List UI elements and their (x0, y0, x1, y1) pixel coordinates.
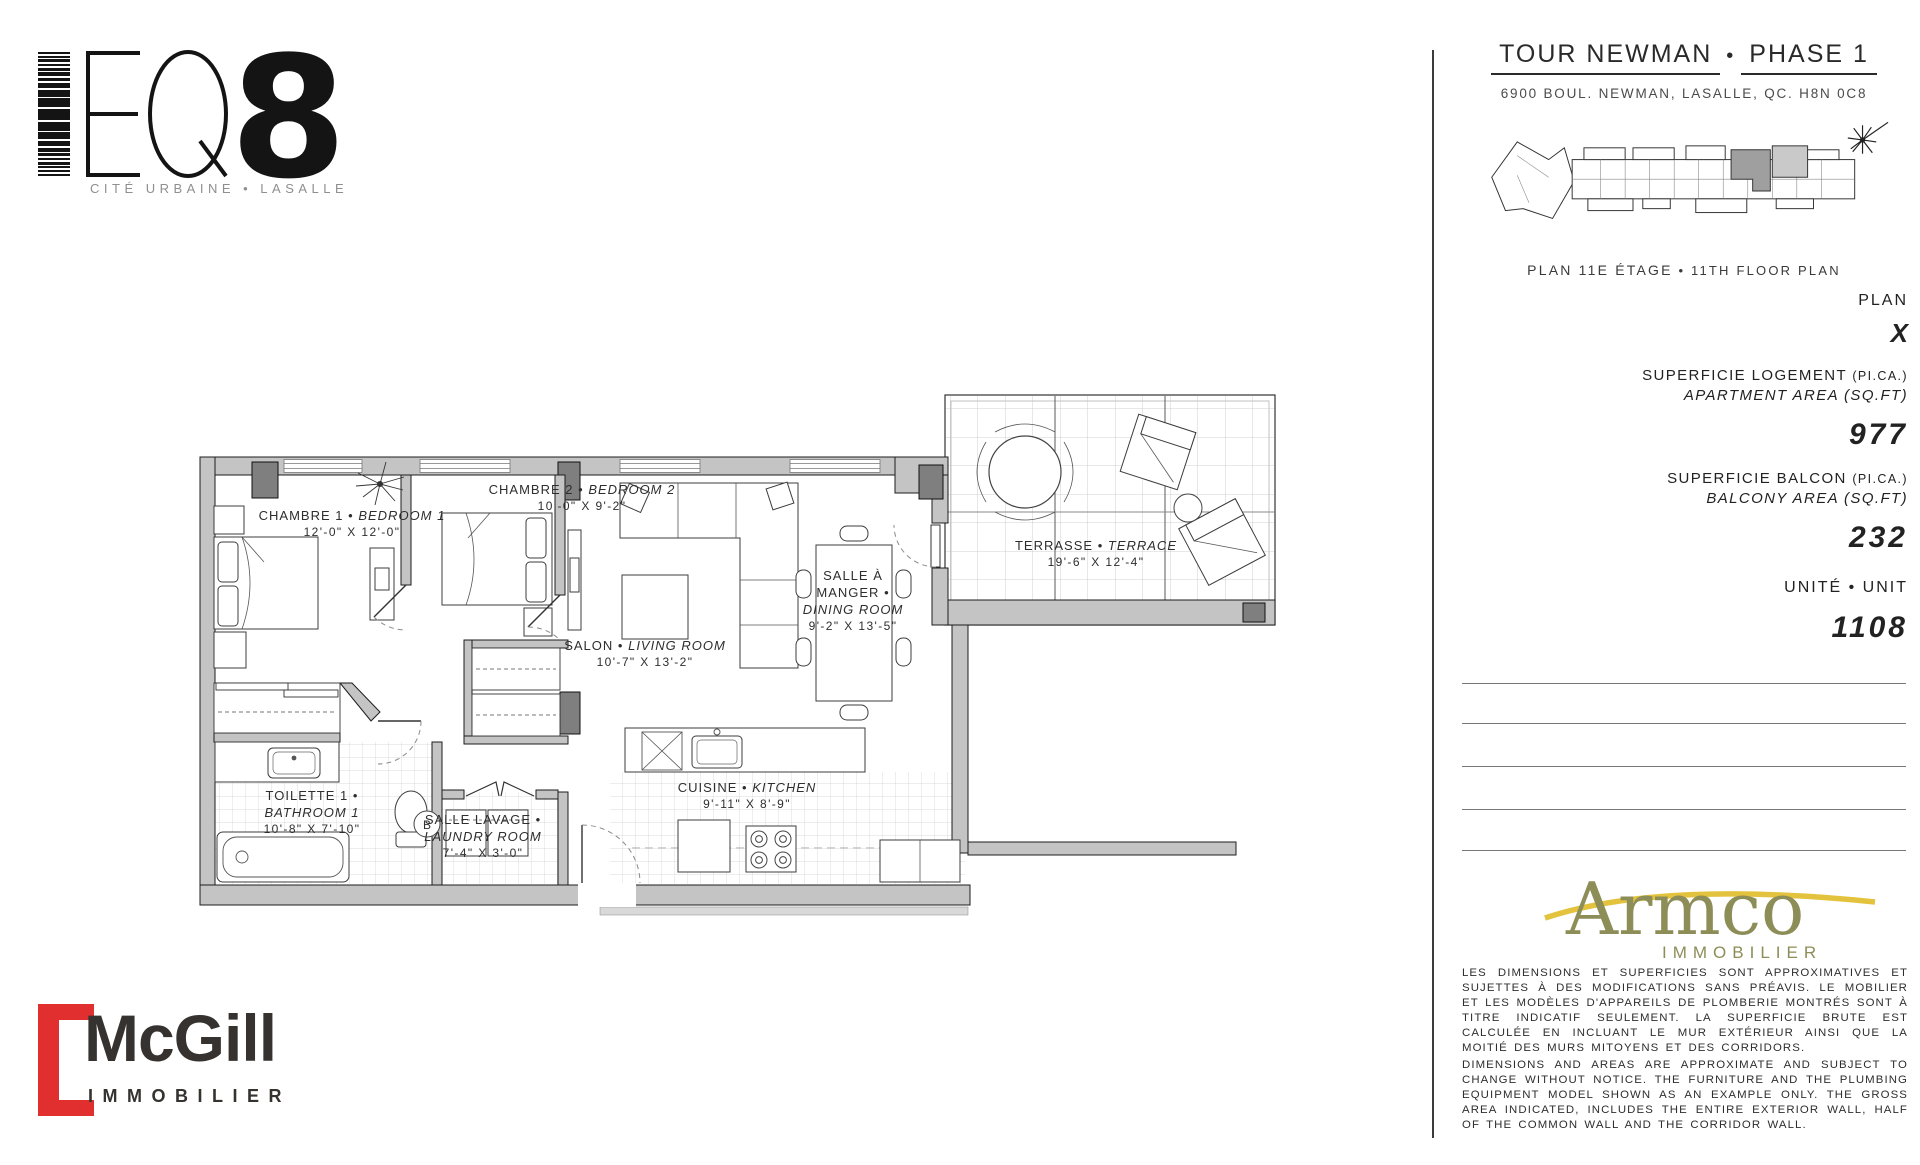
disclaimer-en: DIMENSIONS AND AREAS ARE APPROXIMATE AND… (1462, 1058, 1908, 1133)
project-title-en: PHASE 1 (1741, 40, 1877, 75)
vanity-sink-icon (215, 742, 339, 782)
keyplan (1478, 116, 1890, 264)
mcgill-subtitle: IMMOBILIER (88, 1086, 291, 1107)
signature-line (1462, 766, 1906, 767)
room-label-bathroom: TOILETTE 1 • BATHROOM 1 10'-8" X 7'-10" (237, 788, 387, 837)
spec-block: PLAN X SUPERFICIE LOGEMENT (PI.CA.) APAR… (1460, 292, 1908, 645)
armco-logo: Armco IMMOBILIER (1540, 846, 1880, 964)
plan-label: PLAN (1460, 292, 1908, 310)
svg-text:8: 8 (230, 46, 342, 182)
keyplan-caption: PLAN 11E ÉTAGE • 11TH FLOOR PLAN (1460, 262, 1908, 278)
barcode-logo-icon (38, 52, 70, 176)
project-address: 6900 BOUL. NEWMAN, LASALLE, QC. H8N 0C8 (1460, 86, 1908, 101)
room-label-dining: SALLE À MANGER • DINING ROOM 9'-2" X 13'… (800, 568, 906, 634)
room-label-bedroom2: CHAMBRE 2 • BEDROOM 2 10'-0" X 9'-2" (432, 482, 732, 514)
panel-divider (1432, 50, 1434, 1138)
signature-line (1462, 809, 1906, 810)
mcgill-name: McGill (84, 1000, 276, 1076)
compass-icon (1848, 122, 1888, 153)
floor-plan: B CHAMBRE 1 (180, 380, 1320, 920)
apartment-area-label-fr: SUPERFICIE LOGEMENT (PI.CA.) (1460, 367, 1908, 384)
balcony-area-label-en: BALCONY AREA (SQ.FT) (1460, 490, 1908, 507)
keyplan-drawing (1478, 116, 1890, 264)
side-table-icon (1174, 494, 1202, 522)
coffee-table-icon (622, 575, 688, 639)
stove-icon (746, 826, 796, 872)
bathtub-icon (217, 832, 349, 882)
kitchen-island-icon (678, 820, 730, 872)
plan-value: X (1460, 318, 1908, 349)
brand-tagline: CITÉ URBAINE • LASALLE (90, 181, 348, 196)
signature-line (1462, 683, 1906, 684)
apartment-area-label-en: APARTMENT AREA (SQ.FT) (1460, 387, 1908, 404)
room-label-living: SALON • LIVING ROOM 10'-7" X 13'-2" (495, 638, 795, 670)
armco-logo-icon: Armco IMMOBILIER (1540, 846, 1880, 964)
terrace-area (945, 395, 1275, 625)
bed-icon (214, 537, 318, 629)
eq8-logo-icon: 8 (80, 46, 342, 182)
unit-label: UNITÉ • UNIT (1460, 579, 1908, 597)
room-label-laundry: SALLE LAVAGE • LAUNDRY ROOM 7'-4" X 3'-0… (408, 812, 558, 861)
unit-value: 1108 (1460, 611, 1908, 645)
nightstand-icon (214, 632, 246, 668)
signature-line (1462, 723, 1906, 724)
tv-console-icon (568, 530, 581, 630)
armco-name: Armco (1565, 867, 1804, 951)
project-title-fr: TOUR NEWMAN (1491, 40, 1720, 75)
balcony-area-label-fr: SUPERFICIE BALCON (PI.CA.) (1460, 470, 1908, 487)
room-label-kitchen: CUISINE • KITCHEN 9'-11" X 8'-9" (622, 780, 872, 812)
room-label-terrace: TERRASSE • TERRACE 19'-6" X 12'-4" (946, 538, 1246, 570)
apartment-area-value: 977 (1460, 418, 1908, 452)
balcony-area-value: 232 (1460, 521, 1908, 555)
fridge-icon (880, 840, 960, 882)
project-title: TOUR NEWMAN•PHASE 1 (1460, 40, 1908, 69)
eq8-logo: 8 (80, 46, 342, 187)
kitchen-counter (625, 728, 865, 772)
disclaimer-fr: LES DIMENSIONS ET SUPERFICIES SONT APPRO… (1462, 966, 1908, 1056)
armco-subtitle: IMMOBILIER (1662, 943, 1822, 962)
